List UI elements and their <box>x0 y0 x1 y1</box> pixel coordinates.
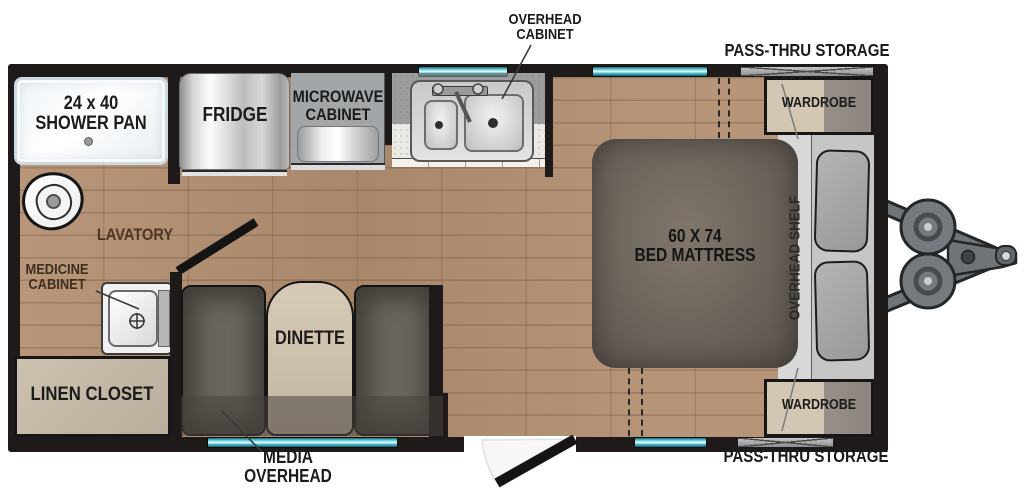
wall-stub <box>443 393 448 437</box>
wardrobe-bottom-label: WARDROBE <box>782 398 856 413</box>
kitchen-sink-drain-right <box>488 118 498 128</box>
shower-pan-label: 24 x 40 SHOWER PAN <box>35 94 146 133</box>
coupler <box>948 240 1016 276</box>
window-bedroom-bottom <box>634 437 707 448</box>
pillow-bottom <box>814 260 871 361</box>
kitchen-sink-drain-left <box>435 121 443 129</box>
medicine-cabinet-label: MEDICINE CABINET <box>25 262 88 293</box>
dinette-label: DINETTE <box>275 329 345 349</box>
entry-door-opening <box>464 436 576 453</box>
pillow-top <box>814 149 871 252</box>
fridge-label: FRIDGE <box>203 105 268 126</box>
overhead-shelf-label: OVERHEAD SHELF <box>787 196 804 321</box>
overhead-cabinet-label: OVERHEAD CABINET <box>508 12 581 43</box>
media-overhead-overlay <box>181 396 443 436</box>
wall-kitchen-end <box>545 64 553 177</box>
pass-thru-hatch-top <box>740 66 874 77</box>
bed-dash-line <box>728 78 730 138</box>
media-overhead-label: MEDIA OVERHEAD <box>244 448 332 485</box>
wall-counter-divider <box>385 73 392 145</box>
shower-drain <box>84 137 93 146</box>
window-bedroom-top <box>592 66 708 77</box>
lavatory-label: LAVATORY <box>97 226 173 244</box>
bed-mattress-label: 60 X 74 BED MATTRESS <box>635 227 756 264</box>
bathroom-sink-basin <box>108 290 158 347</box>
wardrobe-top-label: WARDROBE <box>782 96 856 111</box>
bed-dash-line <box>718 78 720 138</box>
kitchen-faucet-deck <box>432 86 488 96</box>
linen-closet-label: LINEN CLOSET <box>31 384 154 404</box>
toilet-flush <box>46 194 61 209</box>
bed-dash-line <box>641 368 643 436</box>
fridge-base <box>182 170 287 176</box>
bathroom-sink-controls <box>158 290 170 347</box>
floorplan-canvas: OVERHEAD CABINET PASS-THRU STORAGE 24 x … <box>0 0 1024 497</box>
bed-dash-line <box>628 368 630 436</box>
pass-thru-storage-bottom-label: PASS-THRU STORAGE <box>723 447 888 465</box>
microwave <box>297 126 379 162</box>
microwave-cabinet-base <box>291 163 385 170</box>
tongue-jack <box>962 251 975 264</box>
microwave-cabinet-label: MICROWAVE CABINET <box>293 88 384 123</box>
pass-thru-storage-top-label: PASS-THRU STORAGE <box>724 41 889 59</box>
